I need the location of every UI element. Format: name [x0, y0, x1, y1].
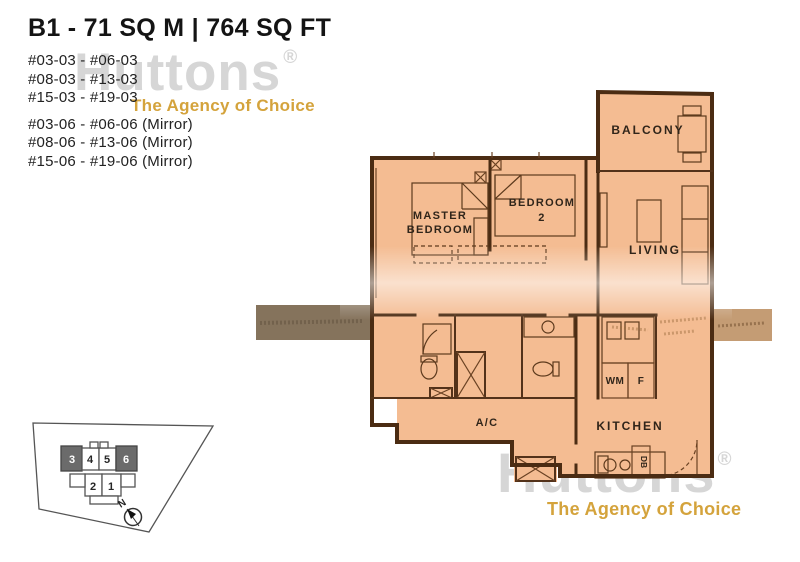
site-wing: [70, 474, 85, 487]
unit-type-title: B1 - 71 SQ M | 764 SQ FT: [28, 14, 331, 43]
unit-range: #08-06 - #13-06 (Mirror): [28, 134, 331, 153]
site-unit-1-label: 1: [108, 481, 114, 493]
label-ac: A/C: [476, 417, 499, 429]
site-unit-4-label: 4: [87, 454, 94, 466]
huttons-tagline-bottom: The Agency of Choice: [547, 499, 741, 520]
site-unit-5-label: 5: [104, 454, 110, 466]
label-master-line1: MASTER: [413, 210, 467, 222]
label-kitchen: KITCHEN: [596, 419, 663, 433]
unit-range: #15-03 - #19-03: [28, 89, 331, 108]
label-master-line2: BEDROOM: [407, 224, 474, 236]
unit-range: #03-03 - #06-03: [28, 52, 331, 71]
unit-list-stack-03: #03-03 - #06-03 #08-03 - #13-03 #15-03 -…: [28, 52, 331, 108]
label-bedroom2-line1: BEDROOM: [509, 197, 576, 209]
site-wing: [90, 496, 118, 504]
site-unit-6-label: 6: [123, 454, 129, 466]
site-unit-2-label: 2: [90, 481, 96, 493]
site-notch: [90, 442, 98, 448]
unit-range: #03-06 - #06-06 (Mirror): [28, 116, 331, 135]
unit-range: #15-06 - #19-06 (Mirror): [28, 153, 331, 172]
unit-range: #08-03 - #13-03: [28, 71, 331, 90]
floorplan-page: Huttons® The Agency of Choice Huttons® T…: [0, 0, 800, 562]
unit-list-stack-06: #03-06 - #06-06 (Mirror) #08-06 - #13-06…: [28, 116, 331, 172]
site-wing: [121, 474, 135, 487]
label-db: DB: [639, 456, 649, 468]
header: B1 - 71 SQ M | 764 SQ FT #03-03 - #06-03…: [28, 14, 331, 171]
label-fridge: F: [638, 376, 645, 387]
label-bedroom2-line2: 2: [538, 212, 545, 224]
label-living: LIVING: [629, 243, 681, 257]
site-key-plan: 3 4 5 6 2 1 N: [33, 423, 213, 532]
site-notch: [100, 442, 108, 448]
label-balcony: BALCONY: [611, 123, 684, 137]
glare-band: [340, 246, 732, 320]
label-wm: WM: [606, 376, 625, 387]
site-unit-3-label: 3: [69, 454, 75, 466]
